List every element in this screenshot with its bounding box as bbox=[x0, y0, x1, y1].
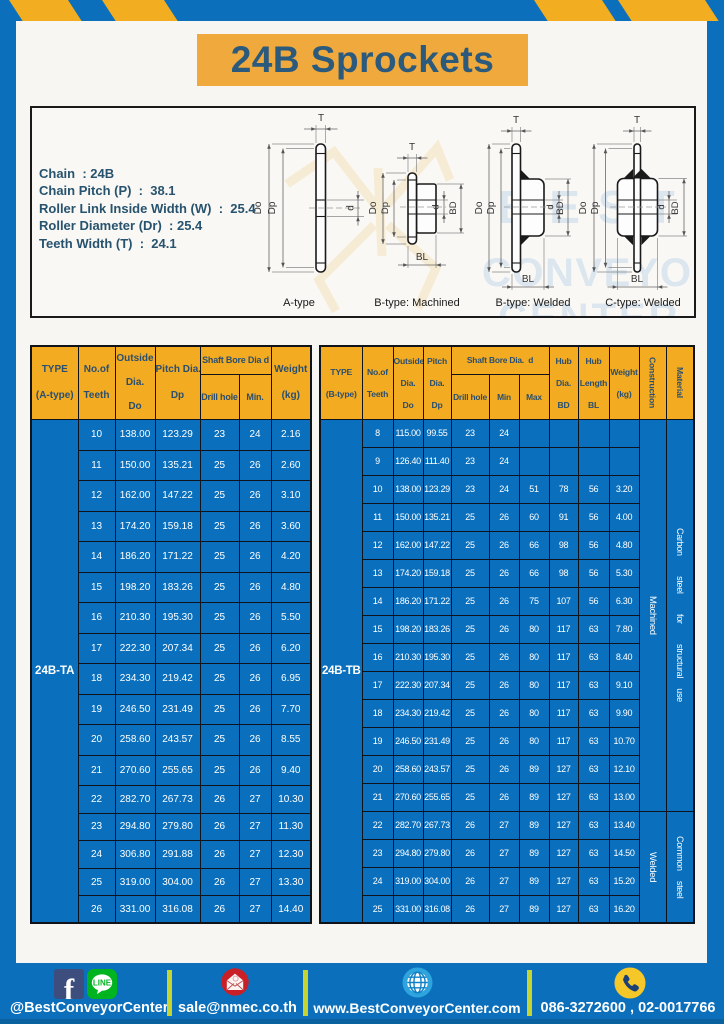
svg-text:T: T bbox=[409, 142, 415, 153]
svg-text:Dp: Dp bbox=[590, 201, 601, 214]
svg-text:Dp: Dp bbox=[267, 201, 278, 214]
svg-text:C-type: Welded: C-type: Welded bbox=[605, 297, 681, 309]
svg-text:BL: BL bbox=[522, 274, 535, 285]
svg-text:Do: Do bbox=[474, 201, 485, 214]
svg-text:A-type: A-type bbox=[283, 297, 315, 309]
svg-text:Do: Do bbox=[368, 201, 379, 214]
svg-text:d: d bbox=[431, 204, 442, 209]
svg-text:BD: BD bbox=[670, 201, 681, 214]
svg-text:Dp: Dp bbox=[486, 201, 497, 214]
svg-text:Dp: Dp bbox=[380, 202, 391, 214]
svg-text:LINE: LINE bbox=[93, 979, 112, 988]
svg-text:BL: BL bbox=[416, 252, 429, 263]
svg-text:B-type: Machined: B-type: Machined bbox=[374, 297, 460, 309]
svg-text:T: T bbox=[513, 115, 519, 126]
svg-text:B-type: Welded: B-type: Welded bbox=[495, 297, 570, 309]
svg-text:T: T bbox=[318, 113, 324, 124]
svg-text:T: T bbox=[634, 115, 640, 126]
svg-text:BD: BD bbox=[555, 201, 566, 214]
svg-text:d: d bbox=[656, 204, 667, 209]
svg-text:BL: BL bbox=[631, 274, 644, 285]
svg-text:d: d bbox=[346, 205, 357, 211]
svg-text:Do: Do bbox=[578, 201, 589, 214]
svg-text:BD: BD bbox=[448, 201, 459, 214]
